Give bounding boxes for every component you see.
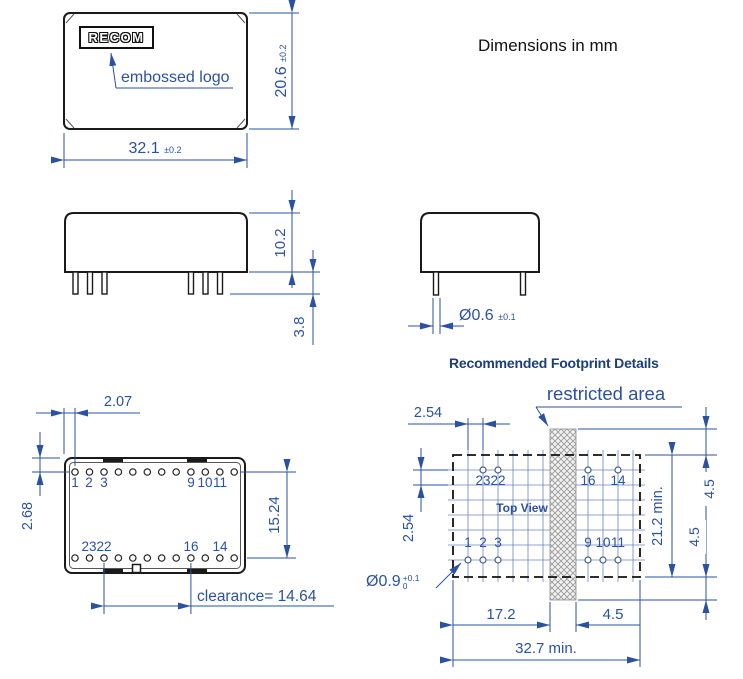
pitch-y-dimension: 2.54 (401, 488, 421, 568)
front-width-dimension: 32.1 ±0.2 (105, 140, 205, 158)
pad-number: 22 (488, 474, 508, 489)
recom-logo-text: RECOM (89, 30, 145, 45)
pin-number: 11 (210, 476, 230, 491)
end-view-outline (421, 213, 539, 272)
pin-number: 3 (94, 476, 114, 491)
pin-diameter-dimension: Ø0.6 ±0.1 (459, 307, 516, 325)
front-height-dimension: 20.6 ±0.2 (273, 21, 293, 121)
bottom-view-center-notch (133, 565, 141, 573)
pin-number: 22 (94, 540, 114, 555)
overhang-top-dimension: 4.5 (701, 472, 721, 506)
technical-drawing-page: Dimensions in mm RECOM embossed logo 32.… (0, 0, 743, 679)
hole-tolerance: +0.1 0 (403, 573, 420, 590)
side-view-pins (73, 272, 223, 294)
end-view-dimensions (408, 298, 464, 334)
hole-diameter-dimension: Ø0.9 +0.1 0 (366, 573, 419, 591)
dimensions-note: Dimensions in mm (478, 36, 618, 56)
strip-width-dimension: 4.5 (573, 606, 653, 623)
side-view-outline (65, 213, 247, 272)
pin-number: 16 (181, 540, 201, 555)
overhang-bottom-dimension: 4.5 (686, 520, 706, 554)
embossed-logo-callout: embossed logo (121, 69, 230, 87)
pin-offset-x-dimension: 2.07 (78, 394, 158, 411)
pad-number: 14 (608, 474, 628, 489)
pad-number: 16 (578, 474, 598, 489)
pad-number: 3 (488, 536, 508, 551)
clearance-dimension: clearance= 14.64 (197, 588, 316, 606)
footprint-title: Recommended Footprint Details (449, 355, 651, 371)
side-body-height-dimension: 10.2 (272, 193, 292, 293)
restricted-area-label: restricted area (535, 383, 677, 404)
end-view-pins (434, 272, 526, 295)
recom-logo: RECOM (79, 26, 154, 49)
pitch-x-dimension: 2.54 (388, 405, 468, 422)
body-height-dimension: 21.2 min. (650, 466, 670, 566)
pad-number: 11 (608, 536, 628, 551)
pin-offset-y-dimension: 2.68 (20, 476, 40, 556)
row-spacing-dimension: 15.24 (266, 465, 286, 565)
left-width-dimension: 17.2 (461, 606, 541, 623)
total-width-dimension: 32.7 min. (496, 640, 596, 657)
side-pin-length-dimension: 3.8 (291, 277, 311, 377)
top-view-label: Top View (492, 502, 552, 516)
pin-number: 14 (210, 540, 230, 555)
